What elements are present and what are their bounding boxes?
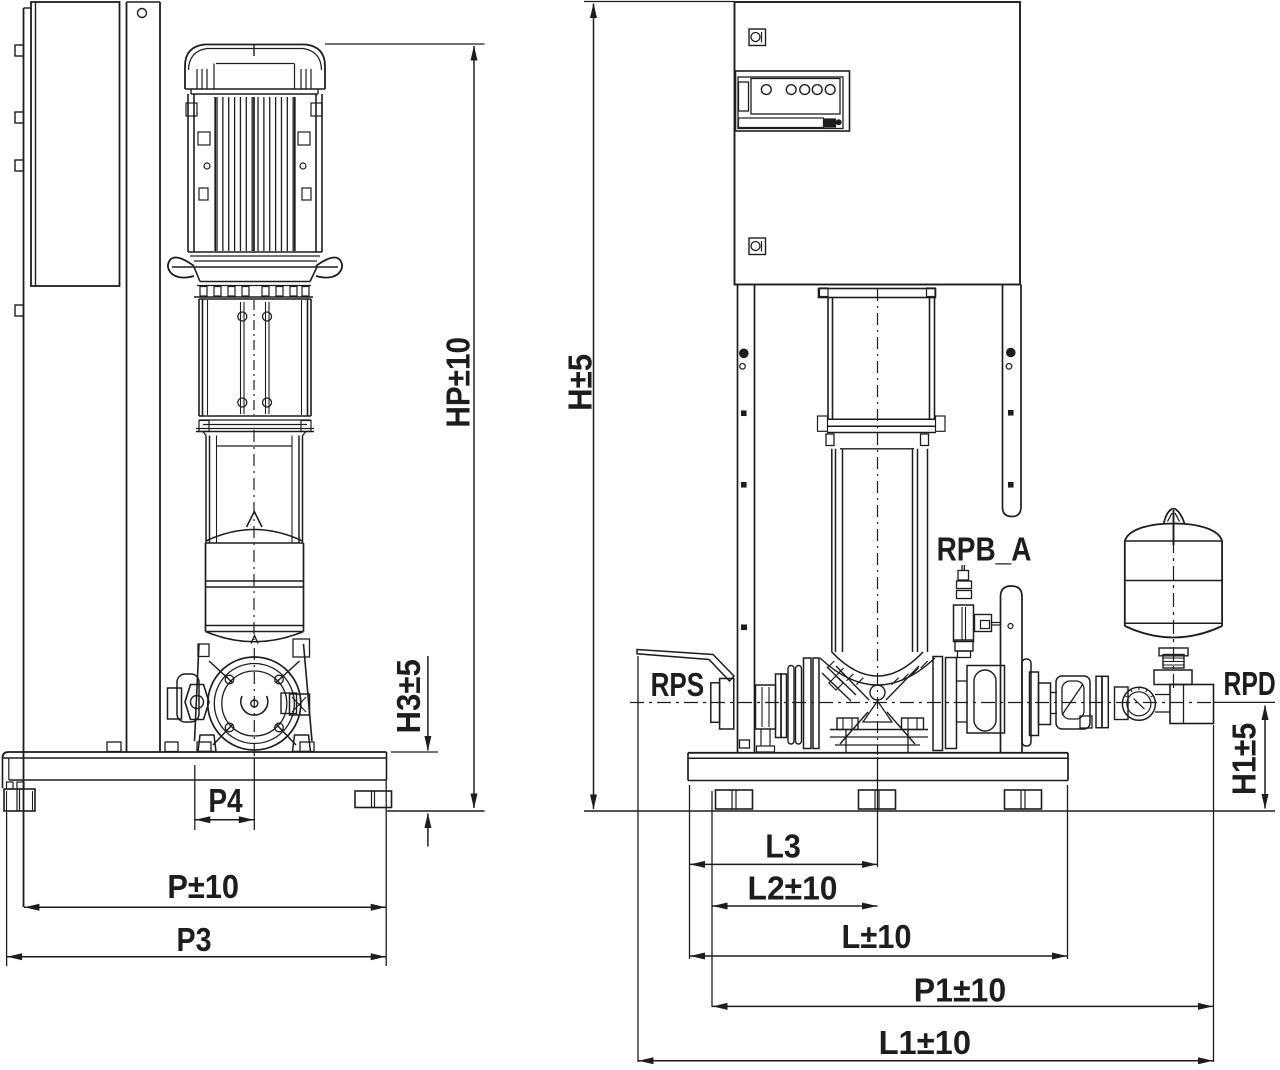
svg-text:RPD: RPD bbox=[1224, 665, 1276, 702]
svg-text:RPB_A: RPB_A bbox=[937, 531, 1032, 568]
svg-text:P1±10: P1±10 bbox=[914, 972, 1006, 1009]
svg-text:L±10: L±10 bbox=[842, 918, 912, 955]
svg-text:L3: L3 bbox=[765, 828, 801, 865]
svg-text:H±5: H±5 bbox=[562, 354, 599, 411]
svg-text:P±10: P±10 bbox=[167, 868, 239, 905]
svg-text:L2±10: L2±10 bbox=[748, 870, 838, 907]
svg-text:H3±5: H3±5 bbox=[390, 659, 427, 733]
svg-text:L1±10: L1±10 bbox=[879, 1024, 971, 1061]
svg-text:P3: P3 bbox=[177, 921, 212, 958]
svg-text:HP±10: HP±10 bbox=[440, 337, 477, 428]
svg-text:H1±5: H1±5 bbox=[1226, 723, 1263, 795]
svg-text:P4: P4 bbox=[208, 782, 243, 819]
svg-text:RPS: RPS bbox=[651, 666, 705, 703]
